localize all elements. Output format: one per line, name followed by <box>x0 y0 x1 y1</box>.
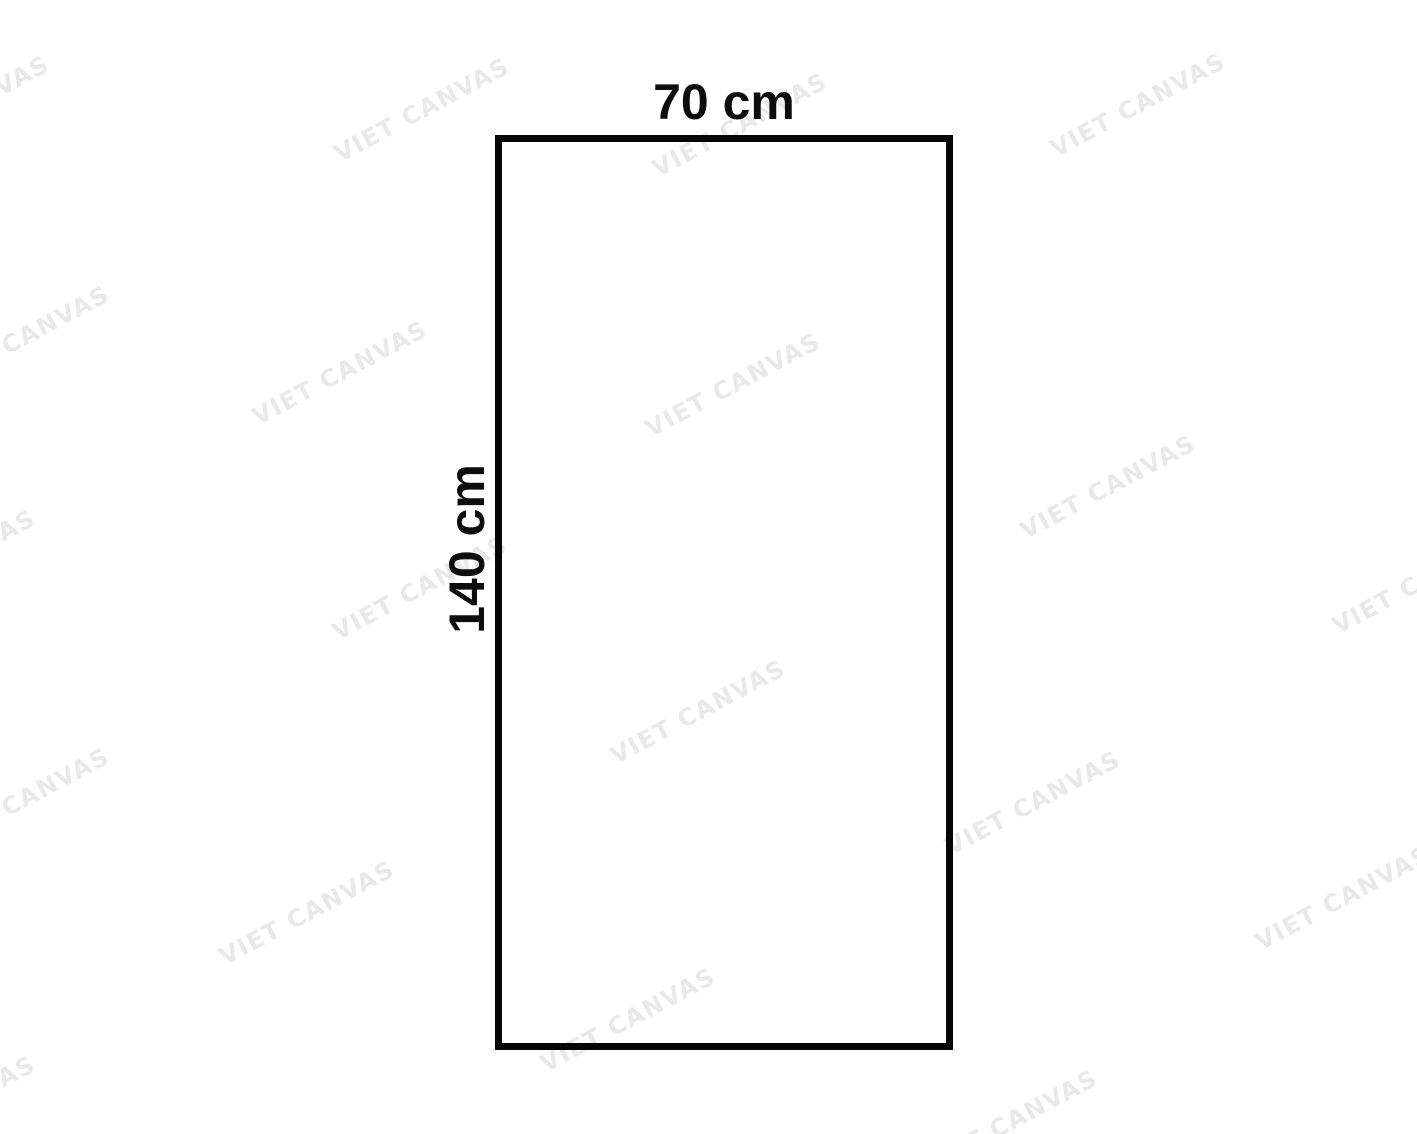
watermark-text: VIET CANVAS <box>1251 840 1417 956</box>
watermark-text: VIET CANVAS <box>1016 429 1201 545</box>
watermark-text: VIET CANVAS <box>0 504 40 620</box>
watermark-text: VIET CANVAS <box>1328 524 1417 640</box>
dimension-rectangle <box>495 135 953 1050</box>
watermark-text: VIET CANVAS <box>330 52 515 168</box>
watermark-text: VIET CANVAS <box>918 1064 1103 1134</box>
watermark-text: VIET CANVAS <box>0 50 54 166</box>
watermark-text: VIET CANVAS <box>941 745 1126 861</box>
height-dimension-label: 140 cm <box>440 464 494 634</box>
watermark-text: VIET CANVAS <box>248 315 433 431</box>
watermark-text: VIET CANVAS <box>0 742 114 858</box>
watermark-text: VIET CANVAS <box>1046 47 1231 163</box>
watermark-text: VIET CANVAS <box>0 280 114 396</box>
width-dimension-label: 70 cm <box>653 75 795 129</box>
watermark-text: VIET CANVAS <box>215 855 400 971</box>
dimension-diagram: VIET CANVASVIET CANVASVIET CANVASVIET CA… <box>0 0 1417 1134</box>
watermark-text: VIET CANVAS <box>0 1050 40 1134</box>
